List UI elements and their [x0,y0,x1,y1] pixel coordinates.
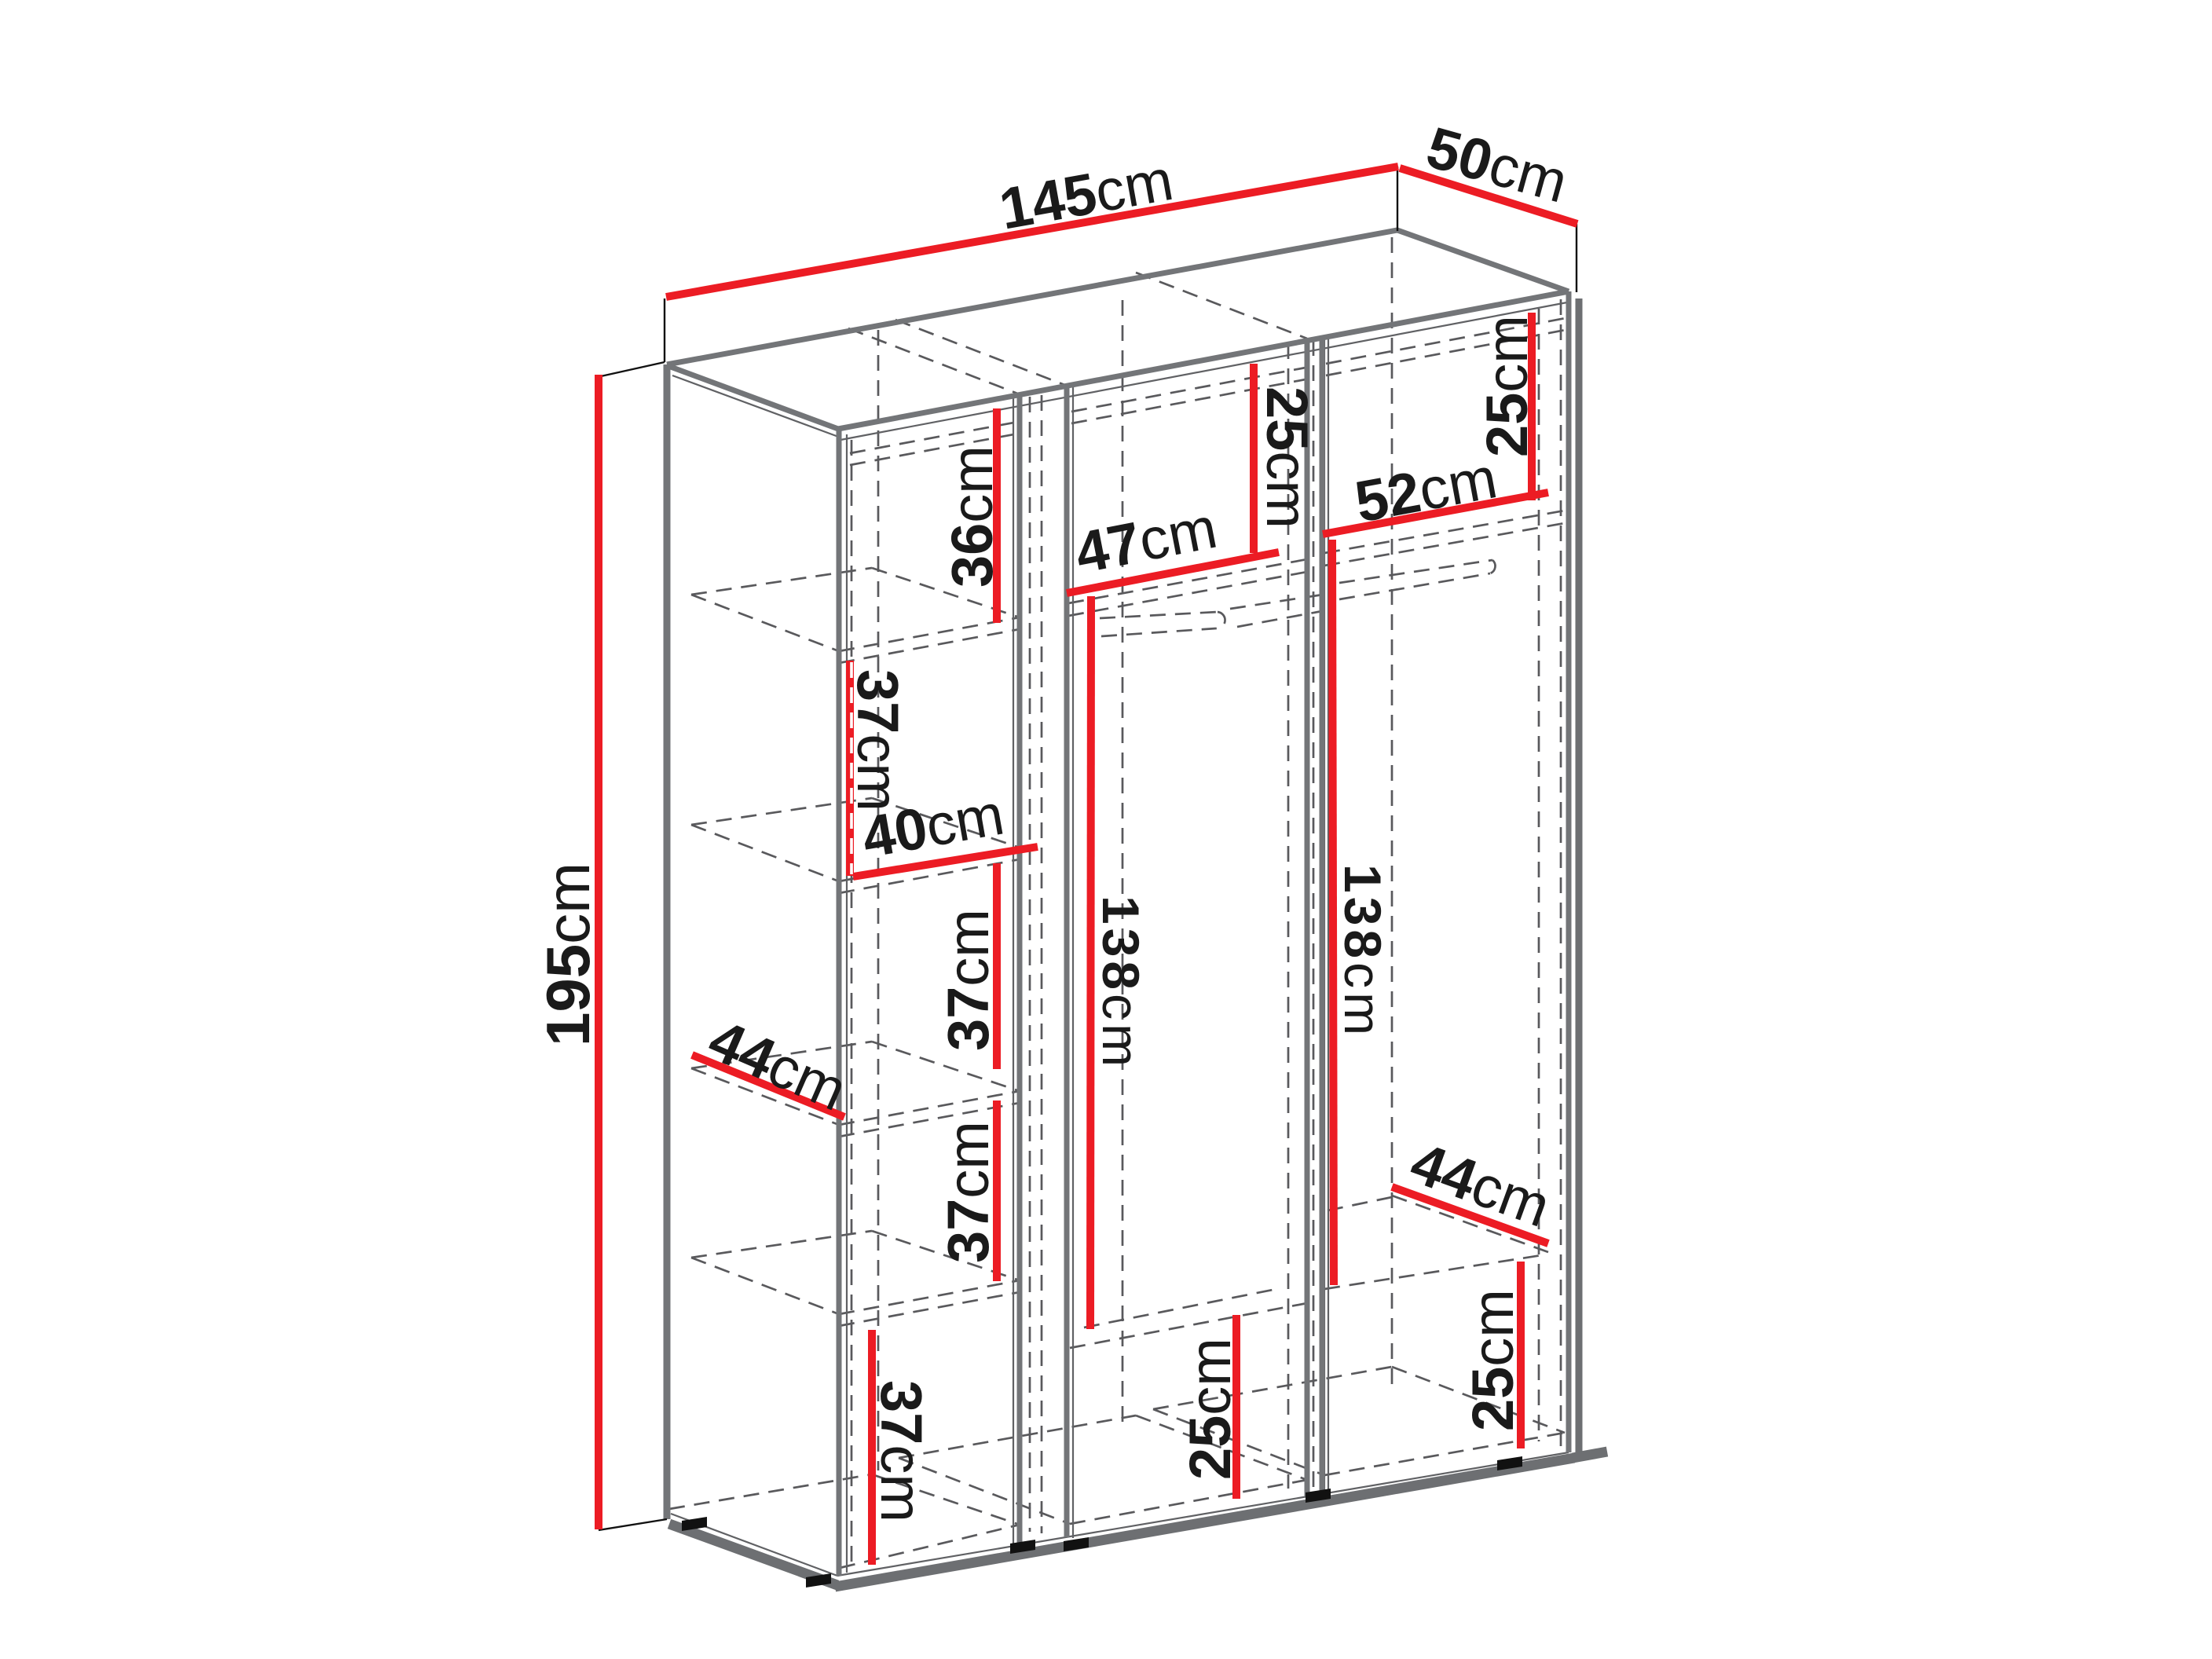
svg-text:138cm: 138cm [1334,864,1392,1039]
svg-text:36cm: 36cm [939,445,1005,588]
svg-text:37cm: 37cm [936,1121,1001,1263]
svg-text:37cm: 37cm [845,669,910,811]
svg-text:138cm: 138cm [1092,895,1150,1071]
svg-text:37cm: 37cm [936,909,1001,1051]
svg-text:25cm: 25cm [1177,1338,1243,1480]
svg-text:25cm: 25cm [1254,386,1320,529]
svg-text:25cm: 25cm [1474,315,1540,457]
svg-text:25cm: 25cm [1460,1289,1525,1431]
svg-text:195cm: 195cm [533,862,602,1046]
svg-text:37cm: 37cm [869,1380,934,1522]
